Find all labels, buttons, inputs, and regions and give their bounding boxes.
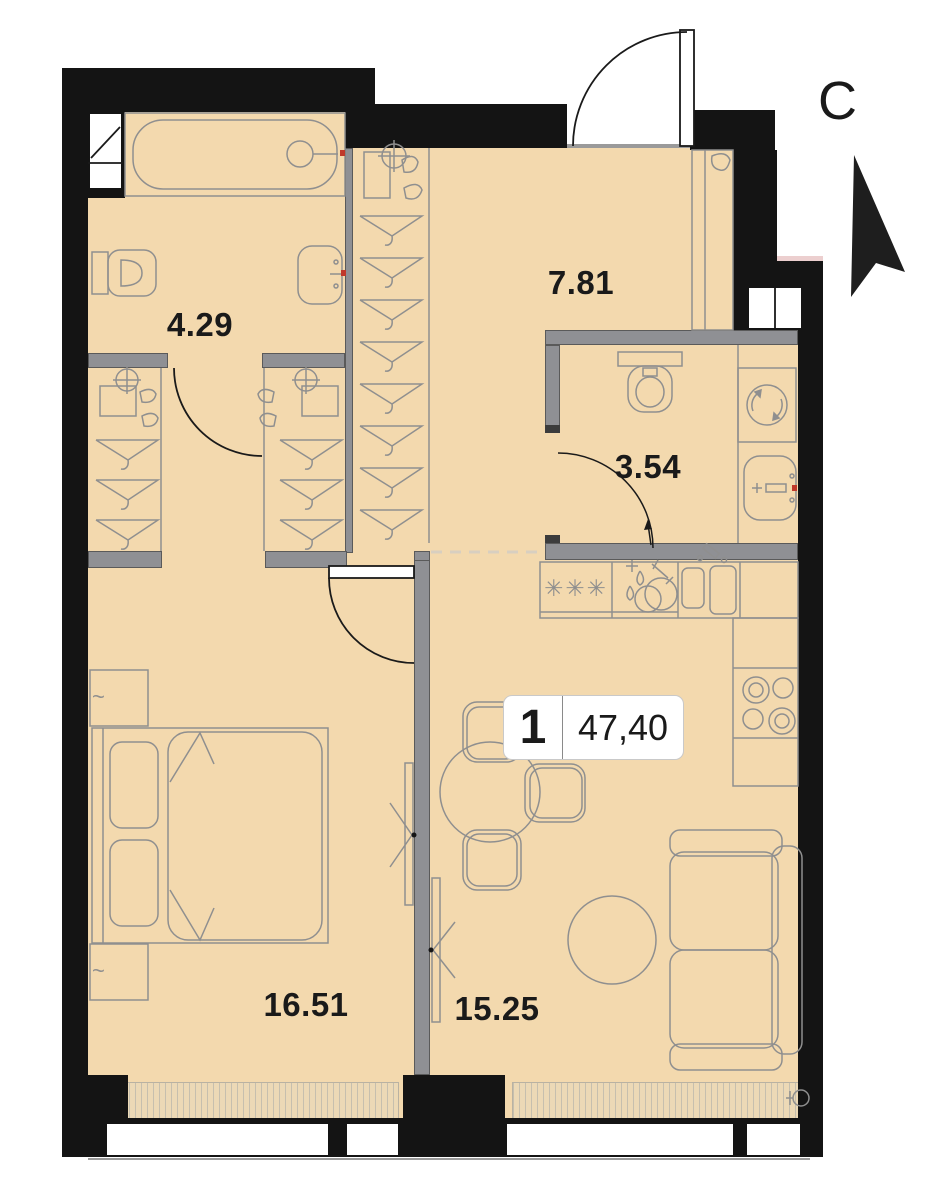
kitchen-sink-icon	[682, 544, 736, 614]
bed	[92, 728, 328, 943]
sliding-door-panels	[390, 763, 455, 1022]
bathroom-door-swing	[174, 368, 262, 456]
stove-icon	[743, 677, 795, 734]
toilet-icon-bathroom	[92, 250, 156, 296]
lamp-icon-top: ~	[92, 684, 105, 710]
toilet-icon-wc	[618, 352, 682, 412]
unit-total-area: 47,40	[563, 696, 683, 759]
washing-machine-icon	[738, 368, 796, 442]
unit-info-badge: 1 47,40	[503, 695, 684, 760]
sofa	[670, 830, 802, 1070]
round-rug	[568, 896, 656, 984]
north-indicator: С	[810, 70, 920, 310]
north-arrow-icon	[840, 148, 920, 318]
sink-icon-bathroom	[298, 246, 342, 304]
closet-right	[258, 366, 342, 549]
entry-door	[573, 30, 694, 146]
vent-glazing-lines	[88, 127, 775, 328]
fridge-icon: ✳✳✳	[542, 575, 610, 602]
north-label: С	[818, 70, 857, 132]
room-label-bedroom: 16.51	[250, 986, 362, 1024]
room-label-wc: 3.54	[598, 448, 698, 486]
entry-cabinet	[692, 150, 733, 330]
room-label-hallway: 7.81	[531, 264, 631, 302]
wardrobe-hallway	[360, 140, 422, 539]
radiator-valve-icon	[786, 1090, 809, 1106]
bathtub	[125, 113, 345, 196]
closet-left	[96, 366, 158, 549]
lamp-icon-bottom: ~	[92, 958, 105, 984]
room-label-bathroom: 4.29	[150, 306, 250, 344]
unit-rooms-count: 1	[504, 696, 562, 759]
red-fitting-dots	[340, 150, 797, 491]
room-label-kitchen-living: 15.25	[441, 990, 553, 1028]
bedroom-door	[329, 566, 414, 663]
floor-plan: 4.29 7.81 3.54 16.51 15.25 ✳✳✳ ~ ~ 1 47,…	[0, 0, 937, 1195]
dishwasher-icon	[626, 560, 677, 612]
sink-icon-wc	[744, 456, 796, 520]
